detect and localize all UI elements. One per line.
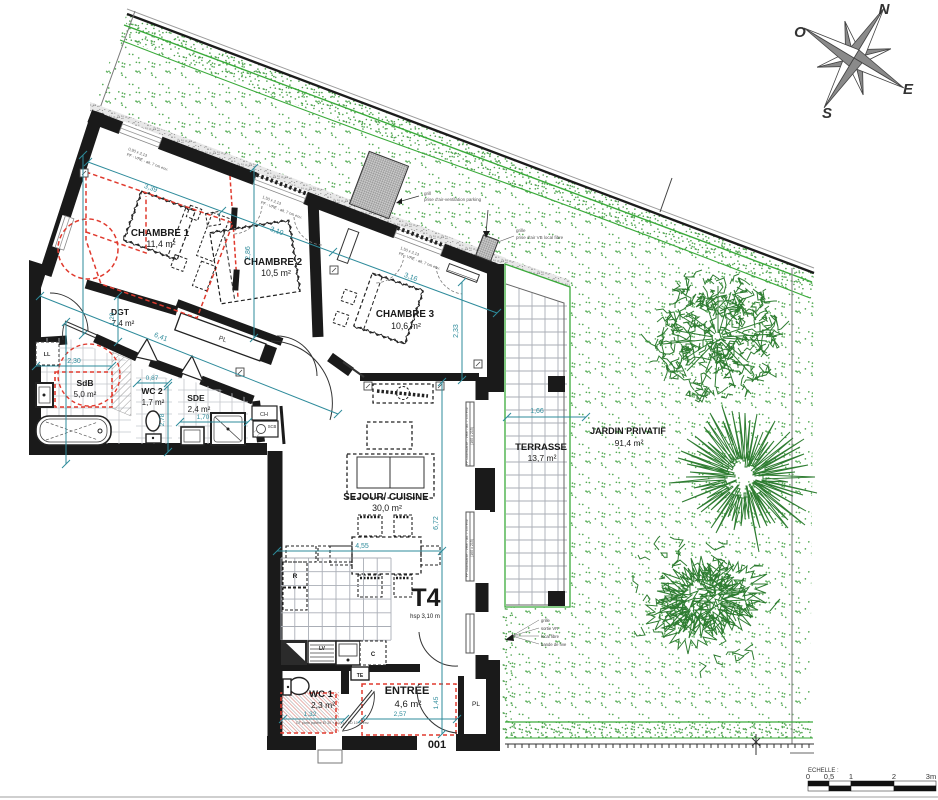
svg-text:PF coulissante - VRE - alt. 7: PF coulissante - VRE - alt. 7 cm env.: [465, 407, 469, 465]
svg-text:1,32: 1,32: [304, 711, 317, 718]
svg-text:PL: PL: [472, 701, 480, 708]
svg-text:SdB: SdB: [77, 378, 94, 388]
svg-text:2,33: 2,33: [453, 324, 460, 338]
svg-text:0,87: 0,87: [146, 375, 159, 382]
svg-text:SEJOUR/ CUISINE: SEJOUR/ CUISINE: [343, 492, 429, 503]
svg-text:5,0 m²: 5,0 m²: [74, 390, 97, 399]
svg-text:1,70: 1,70: [197, 414, 210, 421]
svg-text:local fibre: local fibre: [541, 634, 560, 639]
svg-text:grille: grille: [541, 618, 551, 623]
svg-text:hsp 3,10 m: hsp 3,10 m: [410, 614, 440, 620]
svg-text:11,4 m²: 11,4 m²: [146, 239, 175, 249]
svg-text:SCB: SCB: [268, 424, 277, 429]
svg-text:LL: LL: [44, 352, 51, 358]
svg-text:TE: TE: [357, 673, 364, 679]
svg-text:CHAMBRE 1: CHAMBRE 1: [131, 228, 190, 239]
svg-text:prise d'air VB local fibre: prise d'air VB local fibre: [516, 235, 564, 240]
svg-text:R: R: [293, 573, 298, 580]
svg-text:91,4 m²: 91,4 m²: [615, 438, 644, 448]
svg-text:4,6 m²: 4,6 m²: [395, 699, 422, 710]
svg-text:WC 2: WC 2: [141, 386, 163, 396]
svg-text:WC 1: WC 1: [309, 689, 333, 700]
svg-text:1,7 m²: 1,7 m²: [142, 398, 165, 407]
svg-text:(160 x 215): (160 x 215): [470, 539, 474, 557]
svg-text:1,45: 1,45: [433, 696, 440, 709]
svg-text:2,4 m²: 2,4 m²: [188, 405, 211, 414]
svg-text:CH: CH: [260, 412, 268, 418]
svg-text:prise d'air-ventilation parkin: prise d'air-ventilation parking: [424, 197, 482, 202]
svg-text:CHAMBRE 3: CHAMBRE 3: [376, 309, 435, 320]
svg-text:0: 0: [806, 772, 810, 781]
svg-text:4,55: 4,55: [355, 543, 369, 550]
svg-text:1,66: 1,66: [530, 408, 544, 415]
svg-text:bande de rive: bande de rive: [541, 642, 567, 647]
svg-text:E: E: [903, 81, 914, 98]
svg-text:2,57: 2,57: [394, 711, 407, 718]
svg-text:6,72: 6,72: [433, 516, 440, 530]
svg-text:CHAMBRE 2: CHAMBRE 2: [244, 257, 303, 268]
svg-text:2,86: 2,86: [245, 246, 252, 260]
svg-text:10,5 m²: 10,5 m²: [261, 268, 291, 278]
svg-text:LV: LV: [319, 646, 326, 652]
svg-text:(160 x 215): (160 x 215): [470, 427, 474, 445]
svg-text:2,78: 2,78: [159, 413, 166, 426]
svg-text:O: O: [794, 24, 806, 41]
svg-text:2,3 m²: 2,3 m²: [311, 700, 335, 710]
svg-text:ENTRÉE: ENTRÉE: [385, 684, 430, 697]
svg-text:30,0 m²: 30,0 m²: [372, 503, 402, 513]
svg-text:N: N: [879, 1, 891, 18]
svg-text:10,6 m²: 10,6 m²: [391, 321, 421, 331]
svg-text:001: 001: [428, 739, 446, 751]
svg-text:S: S: [822, 105, 832, 122]
svg-text:grill: grill: [424, 191, 431, 196]
svg-text:SDE: SDE: [187, 393, 205, 403]
svg-text:0,5: 0,5: [824, 772, 834, 781]
svg-text:1,20: 1,20: [109, 312, 116, 325]
svg-text:sortie VR: sortie VR: [541, 626, 558, 631]
svg-text:2: 2: [892, 772, 896, 781]
svg-text:3m: 3m: [926, 772, 936, 781]
svg-text:13,7 m²: 13,7 m²: [528, 453, 557, 463]
svg-text:T4: T4: [411, 584, 440, 612]
svg-text:grille: grille: [516, 228, 526, 233]
svg-text:C: C: [371, 652, 376, 658]
svg-text:TERRASSE: TERRASSE: [515, 442, 567, 453]
svg-text:1: 1: [849, 772, 853, 781]
svg-text:2,30: 2,30: [67, 358, 81, 365]
svg-text:PF coulissante - VRE - alt. 7: PF coulissante - VRE - alt. 7 cm env.: [465, 519, 469, 577]
svg-text:JARDIN PRIVATIF: JARDIN PRIVATIF: [590, 426, 666, 436]
